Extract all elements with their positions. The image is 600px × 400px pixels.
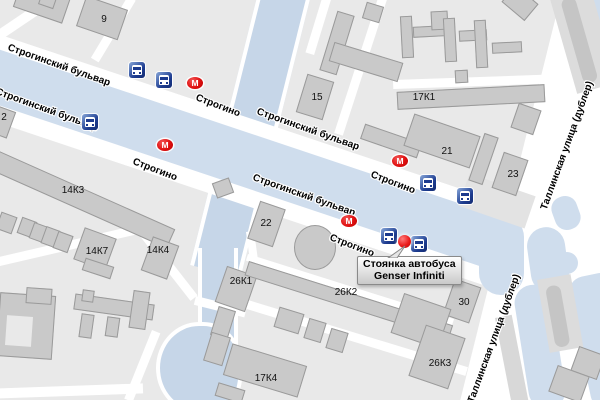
intersection-roadway: [556, 252, 578, 274]
bus-stop-icon[interactable]: [420, 175, 436, 191]
building-label: 22: [252, 218, 280, 229]
building-label: 14К4: [140, 245, 176, 256]
building: [25, 287, 52, 305]
bus-lights: [461, 198, 463, 200]
building: [81, 289, 95, 303]
bus-lights: [424, 185, 426, 187]
metro-icon[interactable]: М: [341, 215, 357, 227]
building: [455, 70, 469, 84]
metro-icon[interactable]: М: [187, 77, 203, 89]
courtyard: [5, 315, 33, 347]
bus-stop-icon[interactable]: [411, 236, 427, 252]
building-label: 26К3: [422, 358, 458, 369]
building: [492, 41, 523, 54]
building-label: 14К3: [55, 185, 91, 196]
building-21: [403, 114, 480, 169]
bus-lights: [86, 124, 88, 126]
building: [0, 212, 18, 235]
bus-lights: [415, 246, 417, 248]
building-label: 23: [499, 169, 527, 180]
building: [400, 16, 414, 59]
building: [443, 18, 457, 63]
building-label: 30: [450, 297, 478, 308]
building: [78, 313, 94, 339]
bus-stop-icon[interactable]: [82, 114, 98, 130]
building-label: 15: [305, 92, 329, 103]
building-label: 17К4: [248, 373, 284, 384]
bus-stop-icon[interactable]: [129, 62, 145, 78]
building-label: 21: [433, 146, 461, 157]
building: [501, 0, 538, 21]
building: [474, 20, 488, 69]
building-label: 2: [0, 112, 12, 123]
map-canvas[interactable]: 2 9 15 17К1 21 23 22 14К3 14К7 14К4 26К1…: [0, 0, 600, 400]
building: [105, 316, 121, 338]
building-label: 26К2: [328, 287, 364, 298]
building-round: [294, 225, 336, 270]
bus-lights: [133, 72, 135, 74]
road: [0, 383, 143, 398]
metro-icon[interactable]: М: [157, 139, 173, 151]
callout-line1: Стоянка автобуса: [363, 259, 456, 271]
building-label: 9: [92, 14, 116, 25]
building: [128, 290, 150, 330]
building: [82, 258, 115, 280]
bus-stop-icon[interactable]: [457, 188, 473, 204]
bus-stop-icon[interactable]: [381, 228, 397, 244]
bus-stop-icon[interactable]: [156, 72, 172, 88]
building-label: 17К1: [406, 92, 442, 103]
callout-pointer: [385, 245, 409, 258]
bus-lights: [385, 238, 387, 240]
building-label: 14К7: [79, 246, 115, 257]
building-label: 26К1: [223, 276, 259, 287]
building: [273, 307, 304, 335]
callout-line2: Genser Infiniti: [363, 271, 456, 283]
callout-balloon[interactable]: Стоянка автобуса Genser Infiniti: [357, 256, 462, 285]
bus-lights: [160, 82, 162, 84]
metro-icon[interactable]: М: [392, 155, 408, 167]
